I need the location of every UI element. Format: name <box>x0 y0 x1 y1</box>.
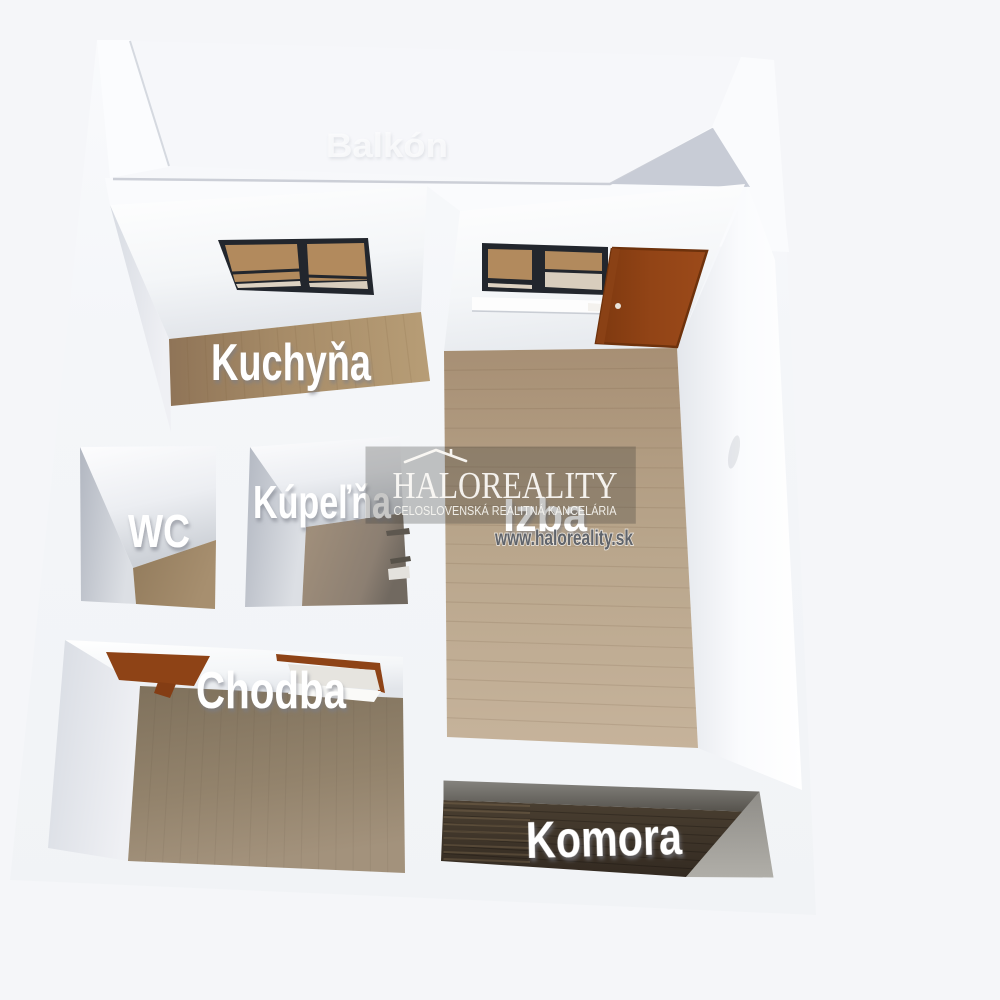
svg-text:www.haloreality.sk: www.haloreality.sk <box>494 527 633 550</box>
svg-text:Balkón: Balkón <box>326 127 448 165</box>
svg-text:HALOREALITY: HALOREALITY <box>393 465 618 507</box>
svg-text:Kuchyňa: Kuchyňa <box>211 334 372 392</box>
svg-text:Komora: Komora <box>525 808 683 870</box>
svg-text:Chodba: Chodba <box>196 662 347 720</box>
svg-text:WC: WC <box>128 505 190 557</box>
svg-text:CELOSLOVENSKÁ REALITNÁ KANCELÁ: CELOSLOVENSKÁ REALITNÁ KANCELÁRIA <box>394 503 617 518</box>
